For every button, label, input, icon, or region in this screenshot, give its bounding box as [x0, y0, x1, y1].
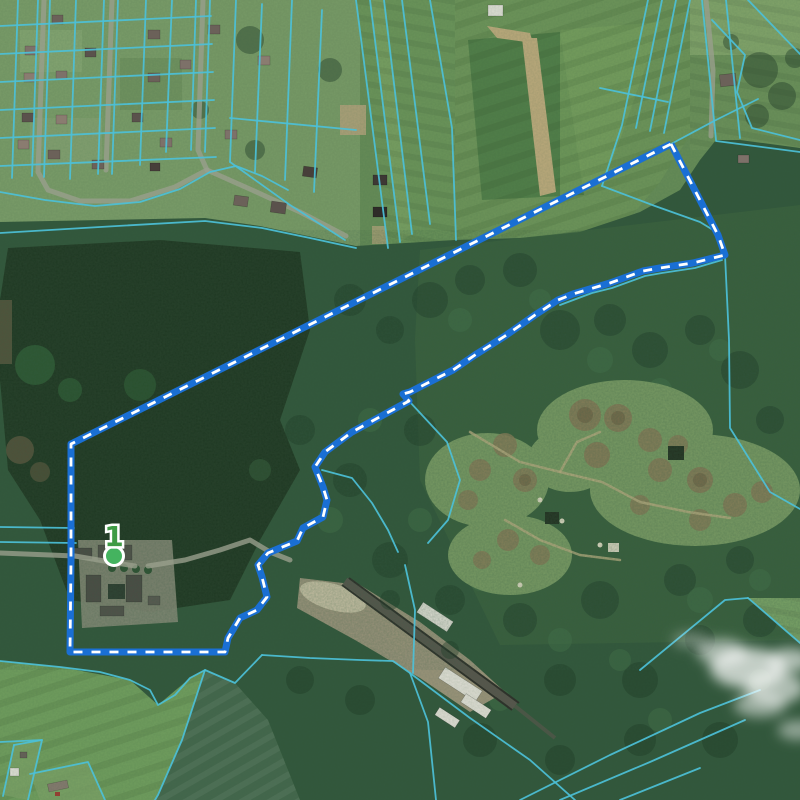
- map-canvas[interactable]: 1: [0, 0, 800, 800]
- marker-label: 1: [104, 520, 123, 553]
- terrain: [0, 0, 800, 800]
- map-viewport[interactable]: 1: [0, 0, 800, 800]
- search-result-marker[interactable]: 1: [104, 520, 123, 566]
